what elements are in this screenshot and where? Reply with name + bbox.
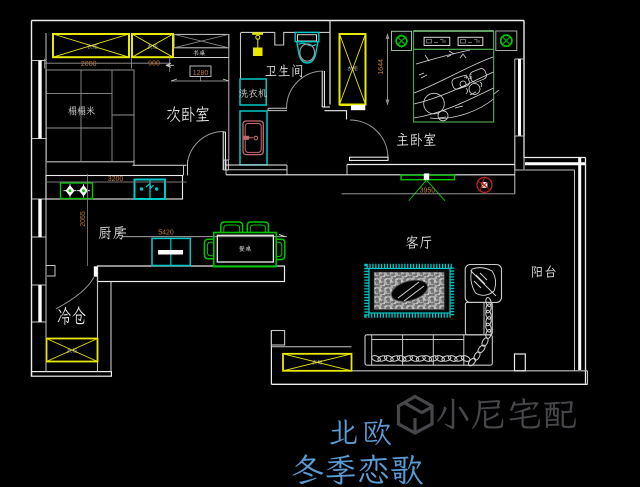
svg-text:2000: 2000 — [81, 61, 97, 68]
svg-text:2055: 2055 — [80, 211, 87, 227]
svg-text:1280: 1280 — [193, 70, 209, 77]
svg-text:4.5: 4.5 — [464, 75, 473, 81]
svg-text:900: 900 — [148, 60, 160, 67]
svg-text:1644: 1644 — [378, 59, 385, 75]
svg-text:3200: 3200 — [108, 176, 124, 183]
svg-text:3950: 3950 — [420, 187, 436, 194]
svg-text:5420: 5420 — [158, 230, 174, 237]
